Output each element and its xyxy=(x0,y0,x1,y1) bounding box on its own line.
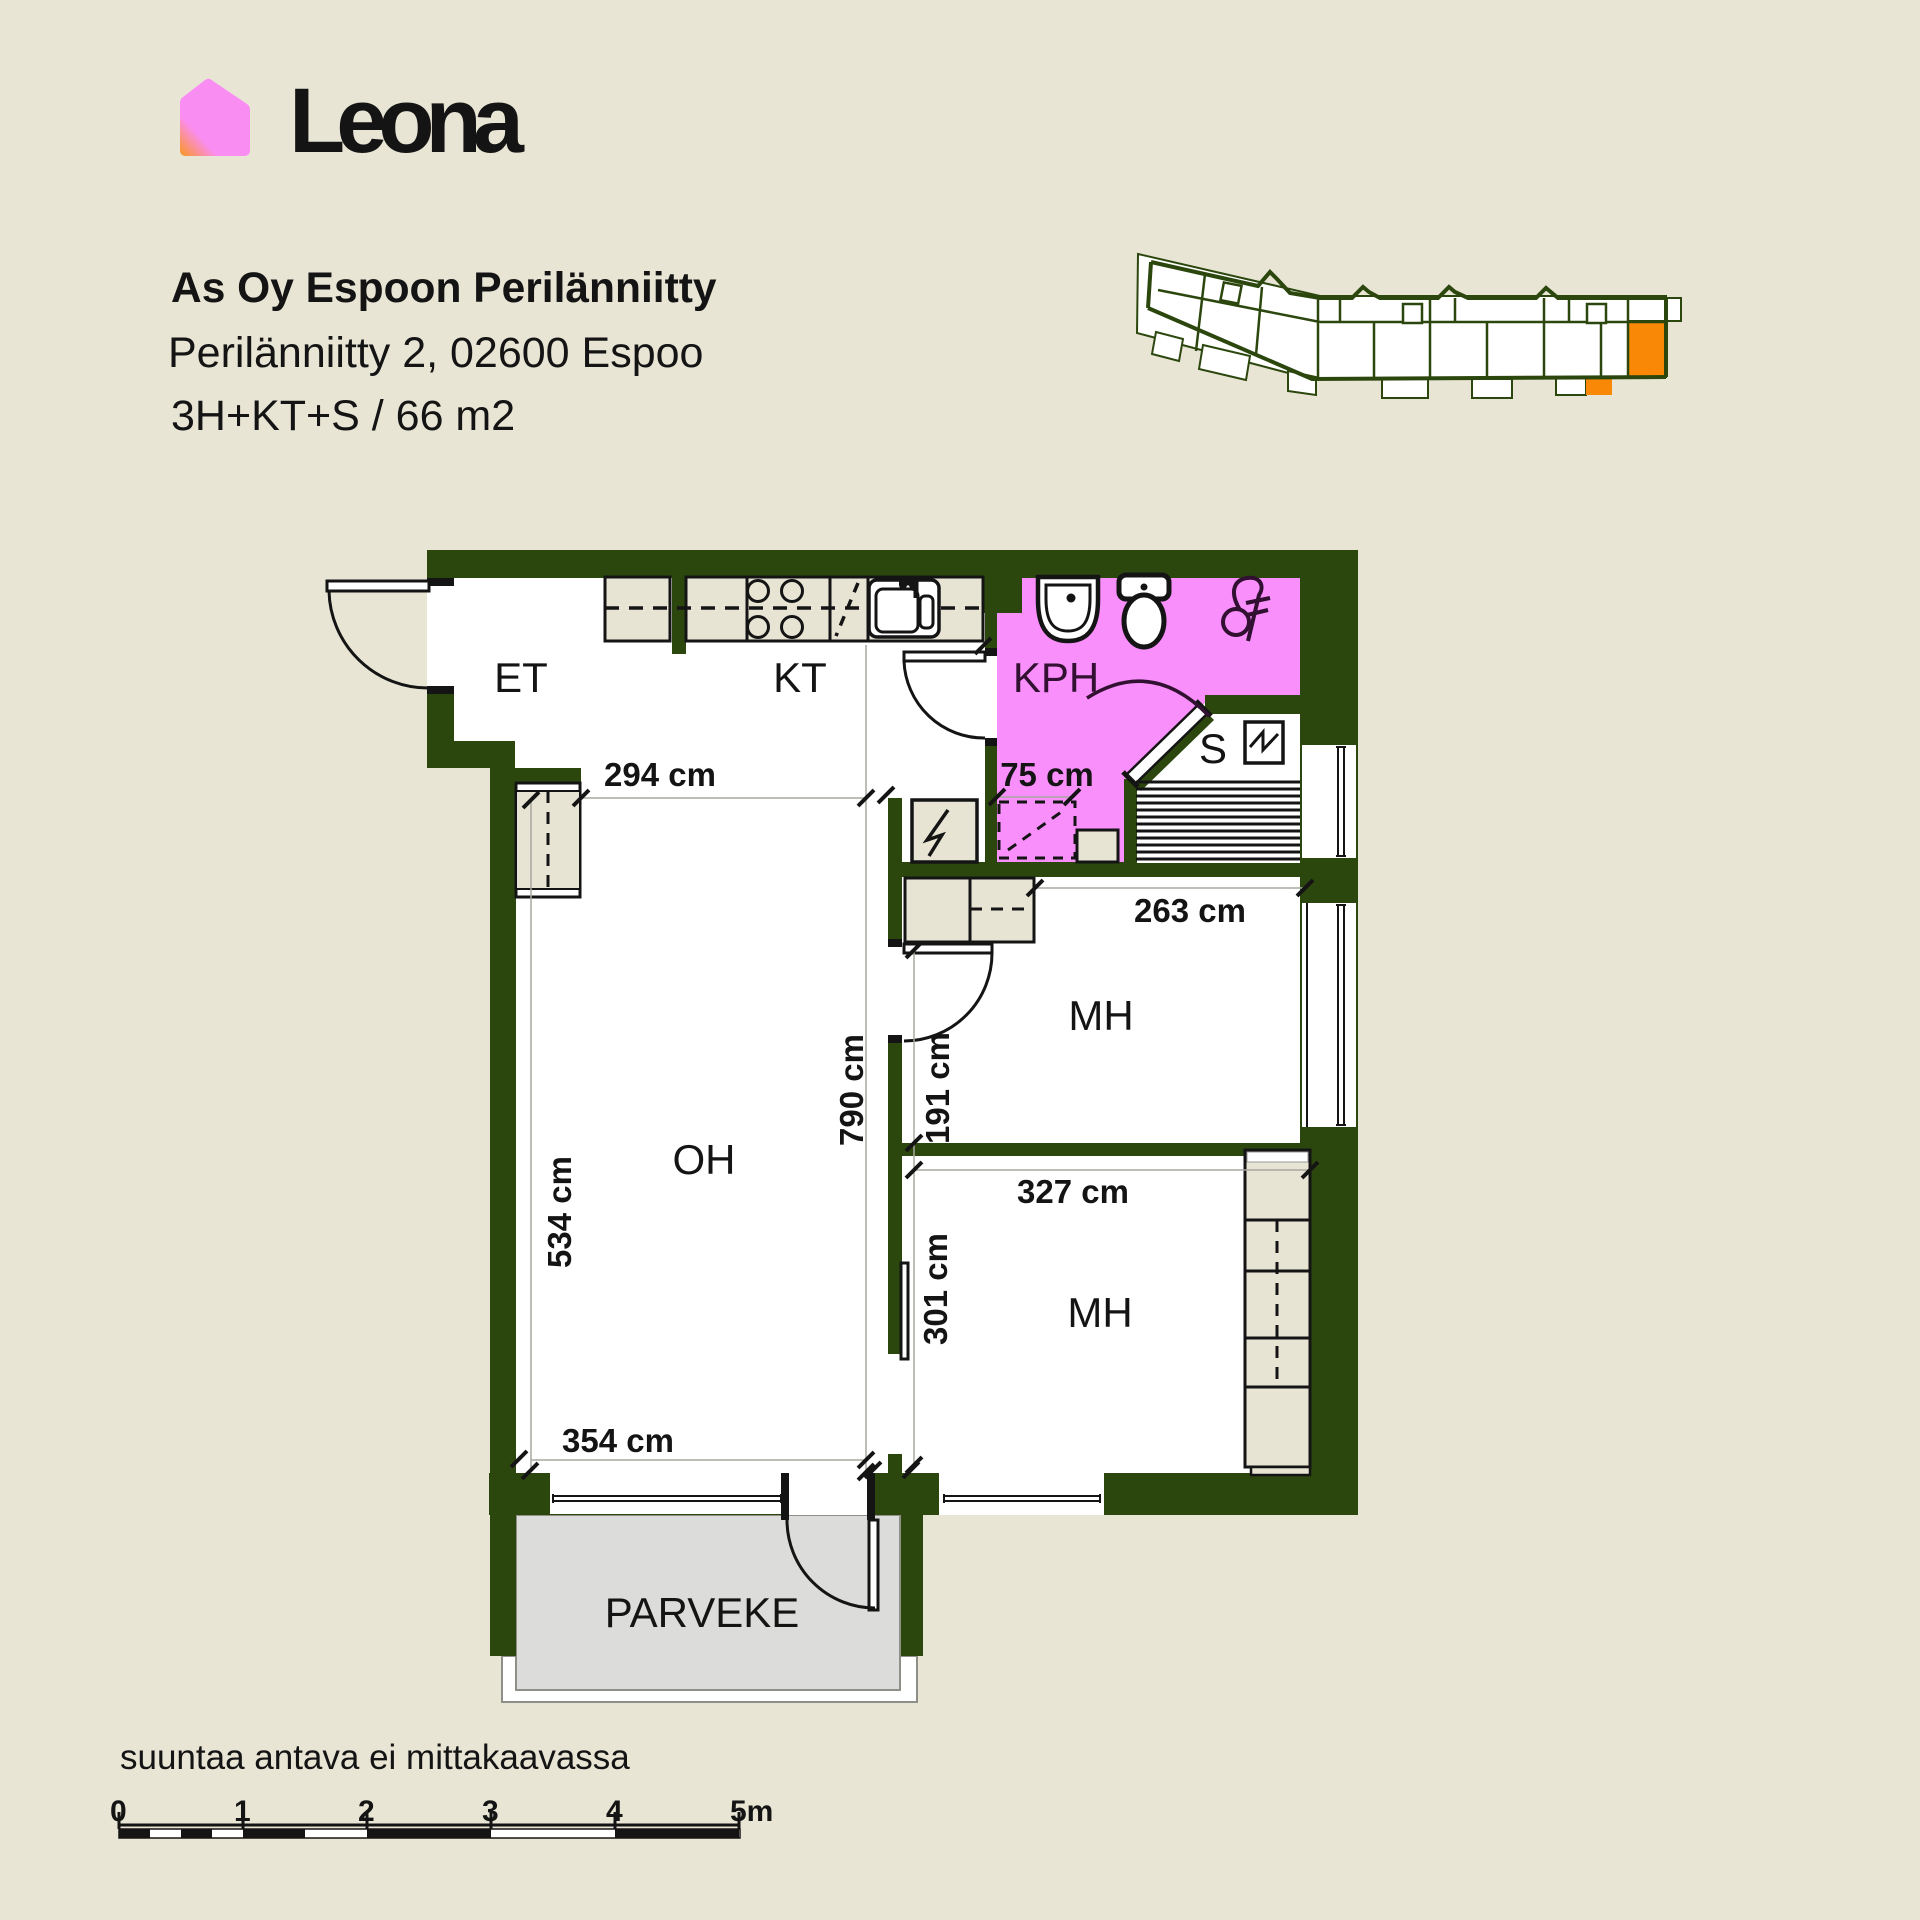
svg-text:As Oy Espoon Perilänniitty: As Oy Espoon Perilänniitty xyxy=(171,265,717,312)
svg-text:327 cm: 327 cm xyxy=(1017,1173,1129,1210)
svg-text:3H+KT+S / 66 m2: 3H+KT+S / 66 m2 xyxy=(171,392,515,440)
svg-text:75 cm: 75 cm xyxy=(1000,756,1094,793)
svg-text:354 cm: 354 cm xyxy=(562,1422,674,1459)
svg-text:PARVEKE: PARVEKE xyxy=(605,1589,800,1636)
svg-text:263 cm: 263 cm xyxy=(1134,892,1246,929)
svg-text:191 cm: 191 cm xyxy=(919,1032,956,1144)
svg-text:suuntaa antava ei mittakaavass: suuntaa antava ei mittakaavassa xyxy=(120,1738,630,1777)
svg-text:Perilänniitty 2, 02600 Espoo: Perilänniitty 2, 02600 Espoo xyxy=(168,329,703,377)
svg-text:KT: KT xyxy=(773,654,827,701)
svg-text:790 cm: 790 cm xyxy=(833,1034,870,1146)
svg-text:301 cm: 301 cm xyxy=(917,1233,954,1345)
svg-text:MH: MH xyxy=(1068,992,1133,1039)
svg-text:S: S xyxy=(1199,725,1227,772)
svg-text:Leona: Leona xyxy=(289,70,525,172)
svg-text:5m: 5m xyxy=(730,1795,773,1828)
svg-text:KPH: KPH xyxy=(1013,654,1099,701)
svg-text:4: 4 xyxy=(606,1795,623,1828)
svg-text:OH: OH xyxy=(673,1136,736,1183)
svg-text:294 cm: 294 cm xyxy=(604,756,716,793)
svg-text:2: 2 xyxy=(358,1795,375,1828)
svg-text:ET: ET xyxy=(494,654,548,701)
svg-text:3: 3 xyxy=(482,1795,499,1828)
svg-text:MH: MH xyxy=(1067,1289,1132,1336)
svg-text:0: 0 xyxy=(110,1795,127,1828)
svg-text:534 cm: 534 cm xyxy=(541,1156,578,1268)
svg-text:1: 1 xyxy=(234,1795,251,1828)
